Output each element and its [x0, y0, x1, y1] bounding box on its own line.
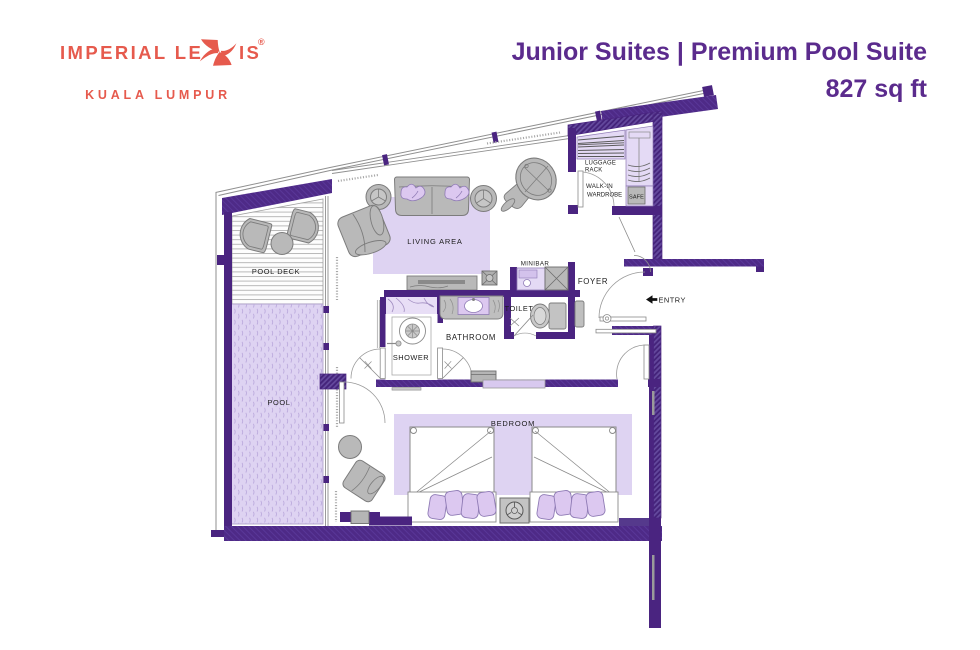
svg-text:POOL DECK: POOL DECK	[252, 267, 300, 276]
svg-text:IMPERIAL LE: IMPERIAL LE	[60, 42, 203, 63]
svg-text:827 sq ft: 827 sq ft	[826, 75, 928, 103]
svg-text:SHOWER: SHOWER	[393, 353, 429, 362]
svg-text:FOYER: FOYER	[578, 277, 608, 286]
svg-text:ENTRY: ENTRY	[659, 296, 686, 305]
svg-text:POOL: POOL	[268, 398, 291, 407]
svg-text:WARDROBE: WARDROBE	[587, 193, 622, 199]
svg-text:MINIBAR: MINIBAR	[521, 261, 550, 268]
svg-text:BEDROOM: BEDROOM	[491, 419, 535, 428]
svg-text:BATHROOM: BATHROOM	[446, 333, 496, 342]
svg-text:KUALA LUMPUR: KUALA LUMPUR	[85, 88, 231, 102]
svg-text:LUGGAGE: LUGGAGE	[585, 161, 616, 167]
svg-text:LIVING AREA: LIVING AREA	[407, 237, 463, 246]
svg-text:TOILET: TOILET	[505, 304, 534, 313]
svg-text:SAFE: SAFE	[629, 195, 644, 201]
svg-text:®: ®	[258, 37, 265, 47]
svg-text:Junior Suites | Premium Pool S: Junior Suites | Premium Pool Suite	[512, 38, 928, 66]
